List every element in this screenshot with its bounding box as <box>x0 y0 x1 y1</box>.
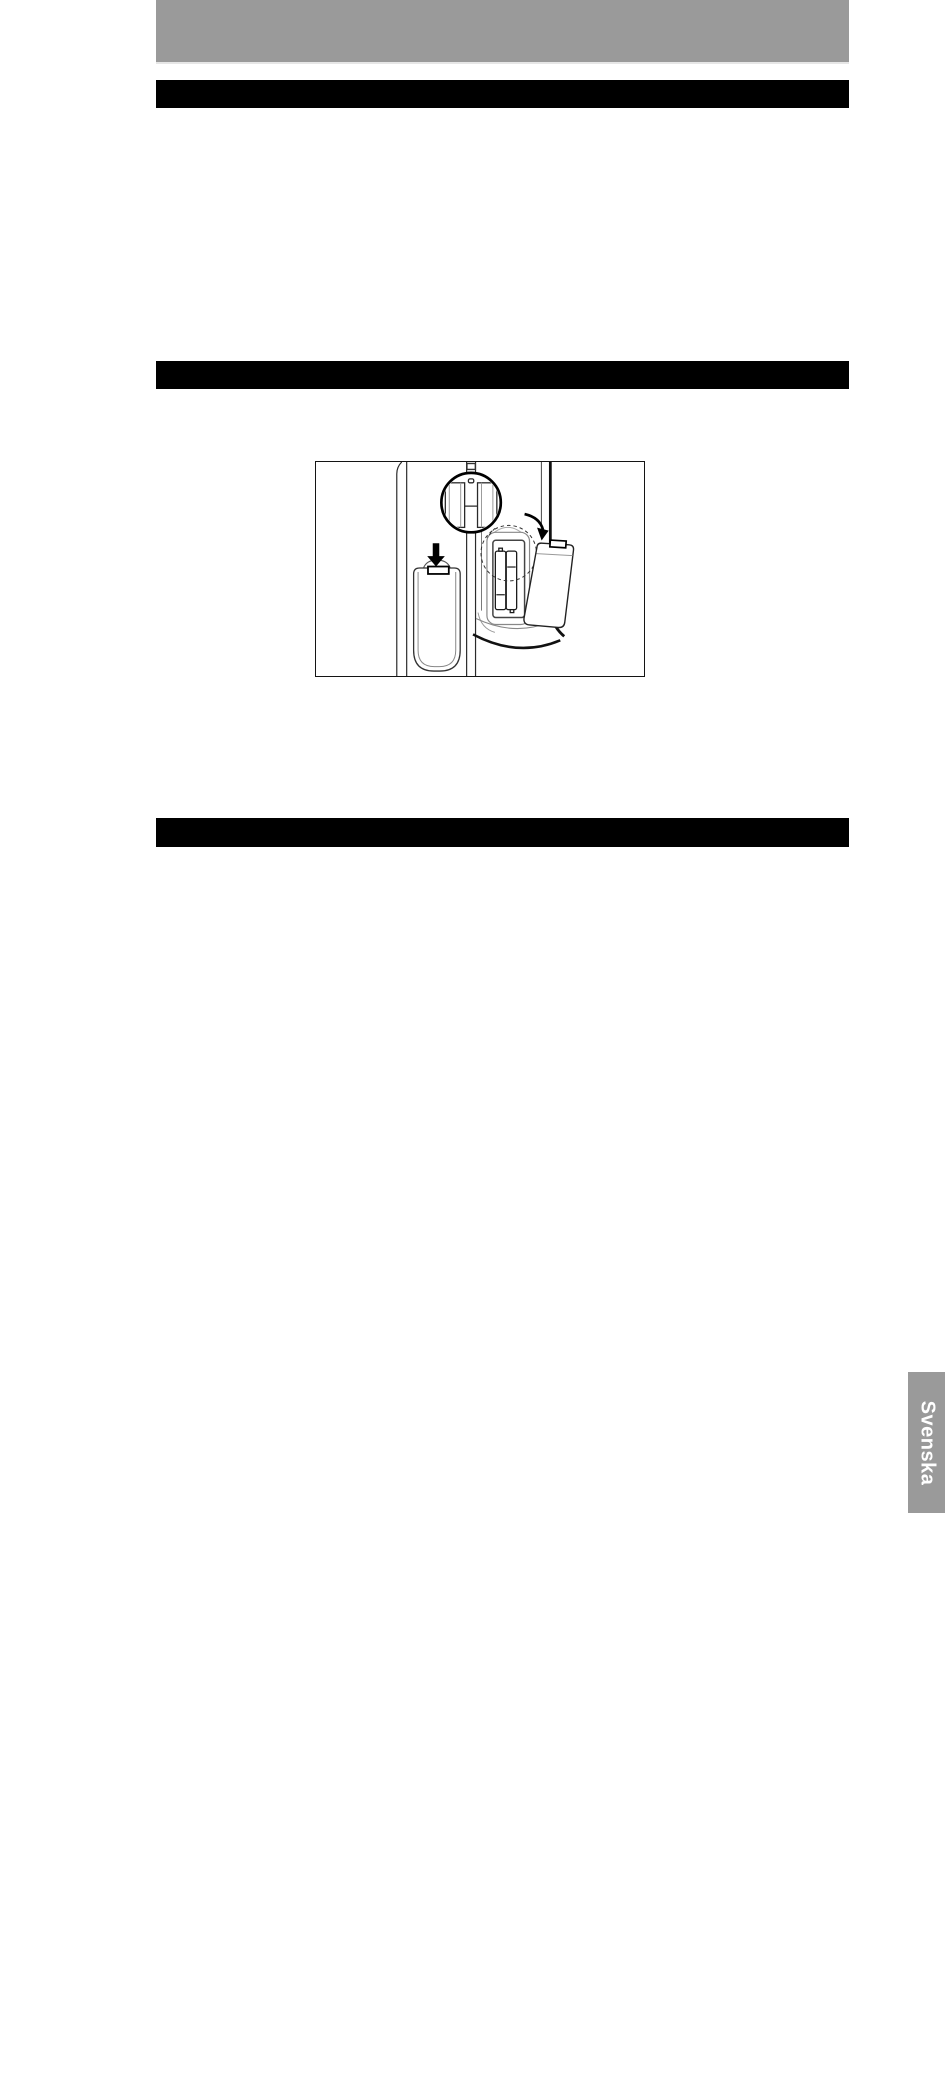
header-band <box>156 0 849 64</box>
language-tab-label: Svenska <box>915 1400 938 1485</box>
battery-installation-figure <box>315 461 645 677</box>
language-tab-svenska: Svenska <box>908 1372 945 1513</box>
battery-installation-drawing <box>316 462 644 676</box>
section-bar-1 <box>156 80 849 108</box>
section-bar-3 <box>156 818 849 847</box>
section-bar-2 <box>156 361 849 389</box>
